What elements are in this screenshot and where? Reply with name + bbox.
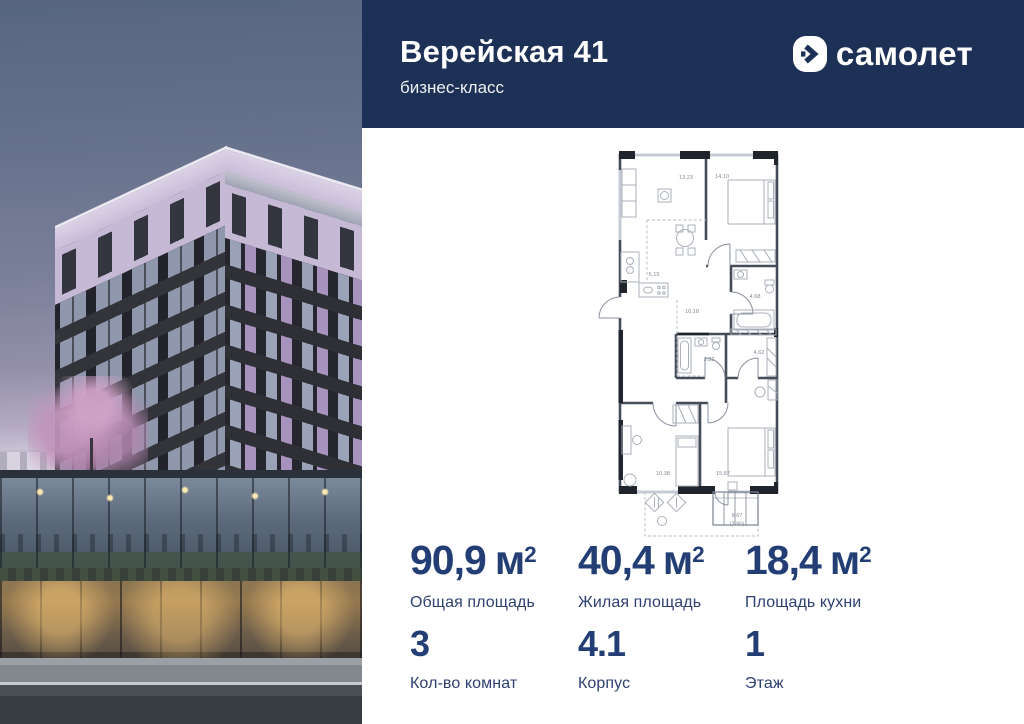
brand-logo: самолет	[793, 36, 973, 72]
project-title: Верейская 41	[400, 34, 608, 70]
stat-label: Площадь кухни	[745, 594, 995, 612]
stat-value: 18,4м2	[745, 540, 995, 581]
podium-slab	[0, 568, 362, 581]
plan-balcony	[713, 492, 758, 525]
room-area-label: 15,87	[716, 471, 730, 477]
brand-name: самолет	[836, 36, 973, 72]
stat-kitchen-area: 18,4м2 Площадь кухни	[745, 540, 995, 612]
stat-label: Корпус	[578, 675, 745, 693]
plan-windows	[620, 155, 753, 492]
stat-value: 90,9м2	[410, 540, 578, 581]
room-area-label: 14,10	[715, 174, 729, 180]
podium-cafe-floor	[0, 581, 362, 665]
area-unit: м2	[830, 537, 872, 583]
stat-rooms-count: 3 Кол-во комнат	[410, 626, 578, 693]
listing-card: Верейская 41 бизнес-класс самолет	[0, 0, 1024, 724]
glass-podium	[0, 470, 362, 665]
room-area-label: 13,23	[679, 175, 693, 181]
stat-total-area: 90,9м2 Общая площадь	[410, 540, 578, 612]
street	[0, 658, 362, 724]
stat-label: Жилая площадь	[578, 594, 745, 612]
stat-label: Кол-во комнат	[410, 675, 578, 693]
area-unit: м2	[663, 537, 705, 583]
floor-plan: 13,23 14,10 5,15 16,18 4,68 3,82 4,62 10…	[590, 150, 780, 542]
room-area-label: 4,62	[754, 350, 765, 356]
area-number: 90,9	[410, 537, 486, 583]
stat-label: Общая площадь	[410, 594, 578, 612]
area-number: 18,4	[745, 537, 821, 583]
building-photo	[0, 0, 362, 724]
stats-areas-row: 90,9м2 Общая площадь 40,4м2 Жилая площад…	[410, 540, 995, 612]
room-area-label: 16,18	[685, 309, 699, 315]
room-area-label: 10,38	[656, 471, 670, 477]
stat-value: 3	[410, 626, 578, 662]
room-area-label: 4,68	[750, 294, 761, 300]
stats-info-row: 3 Кол-во комнат 4.1 Корпус 1 Этаж	[410, 626, 995, 693]
balcony-area-label: 9,67	[732, 513, 743, 519]
area-unit: м2	[495, 537, 537, 583]
room-area-label: 3,82	[704, 357, 715, 363]
podium-fascia	[0, 470, 362, 478]
room-area-label: 5,15	[649, 272, 660, 278]
stat-living-area: 40,4м2 Жилая площадь	[578, 540, 745, 612]
stat-value: 1	[745, 626, 995, 662]
header: Верейская 41 бизнес-класс самолет	[362, 0, 1024, 128]
samolet-logo-icon	[793, 36, 827, 72]
stat-floor: 1 Этаж	[745, 626, 995, 693]
stat-value: 40,4м2	[578, 540, 745, 581]
podium-gym-floor	[0, 478, 362, 568]
stat-building: 4.1 Корпус	[578, 626, 745, 693]
stat-value: 4.1	[578, 626, 745, 662]
area-number: 40,4	[578, 537, 654, 583]
chevron-icon	[793, 36, 827, 72]
plan-openings	[618, 153, 753, 496]
stat-label: Этаж	[745, 675, 995, 693]
project-class: бизнес-класс	[400, 78, 504, 98]
balcony-reduced-area-label: (2,90)	[730, 522, 745, 528]
blossom-tree	[28, 376, 148, 482]
